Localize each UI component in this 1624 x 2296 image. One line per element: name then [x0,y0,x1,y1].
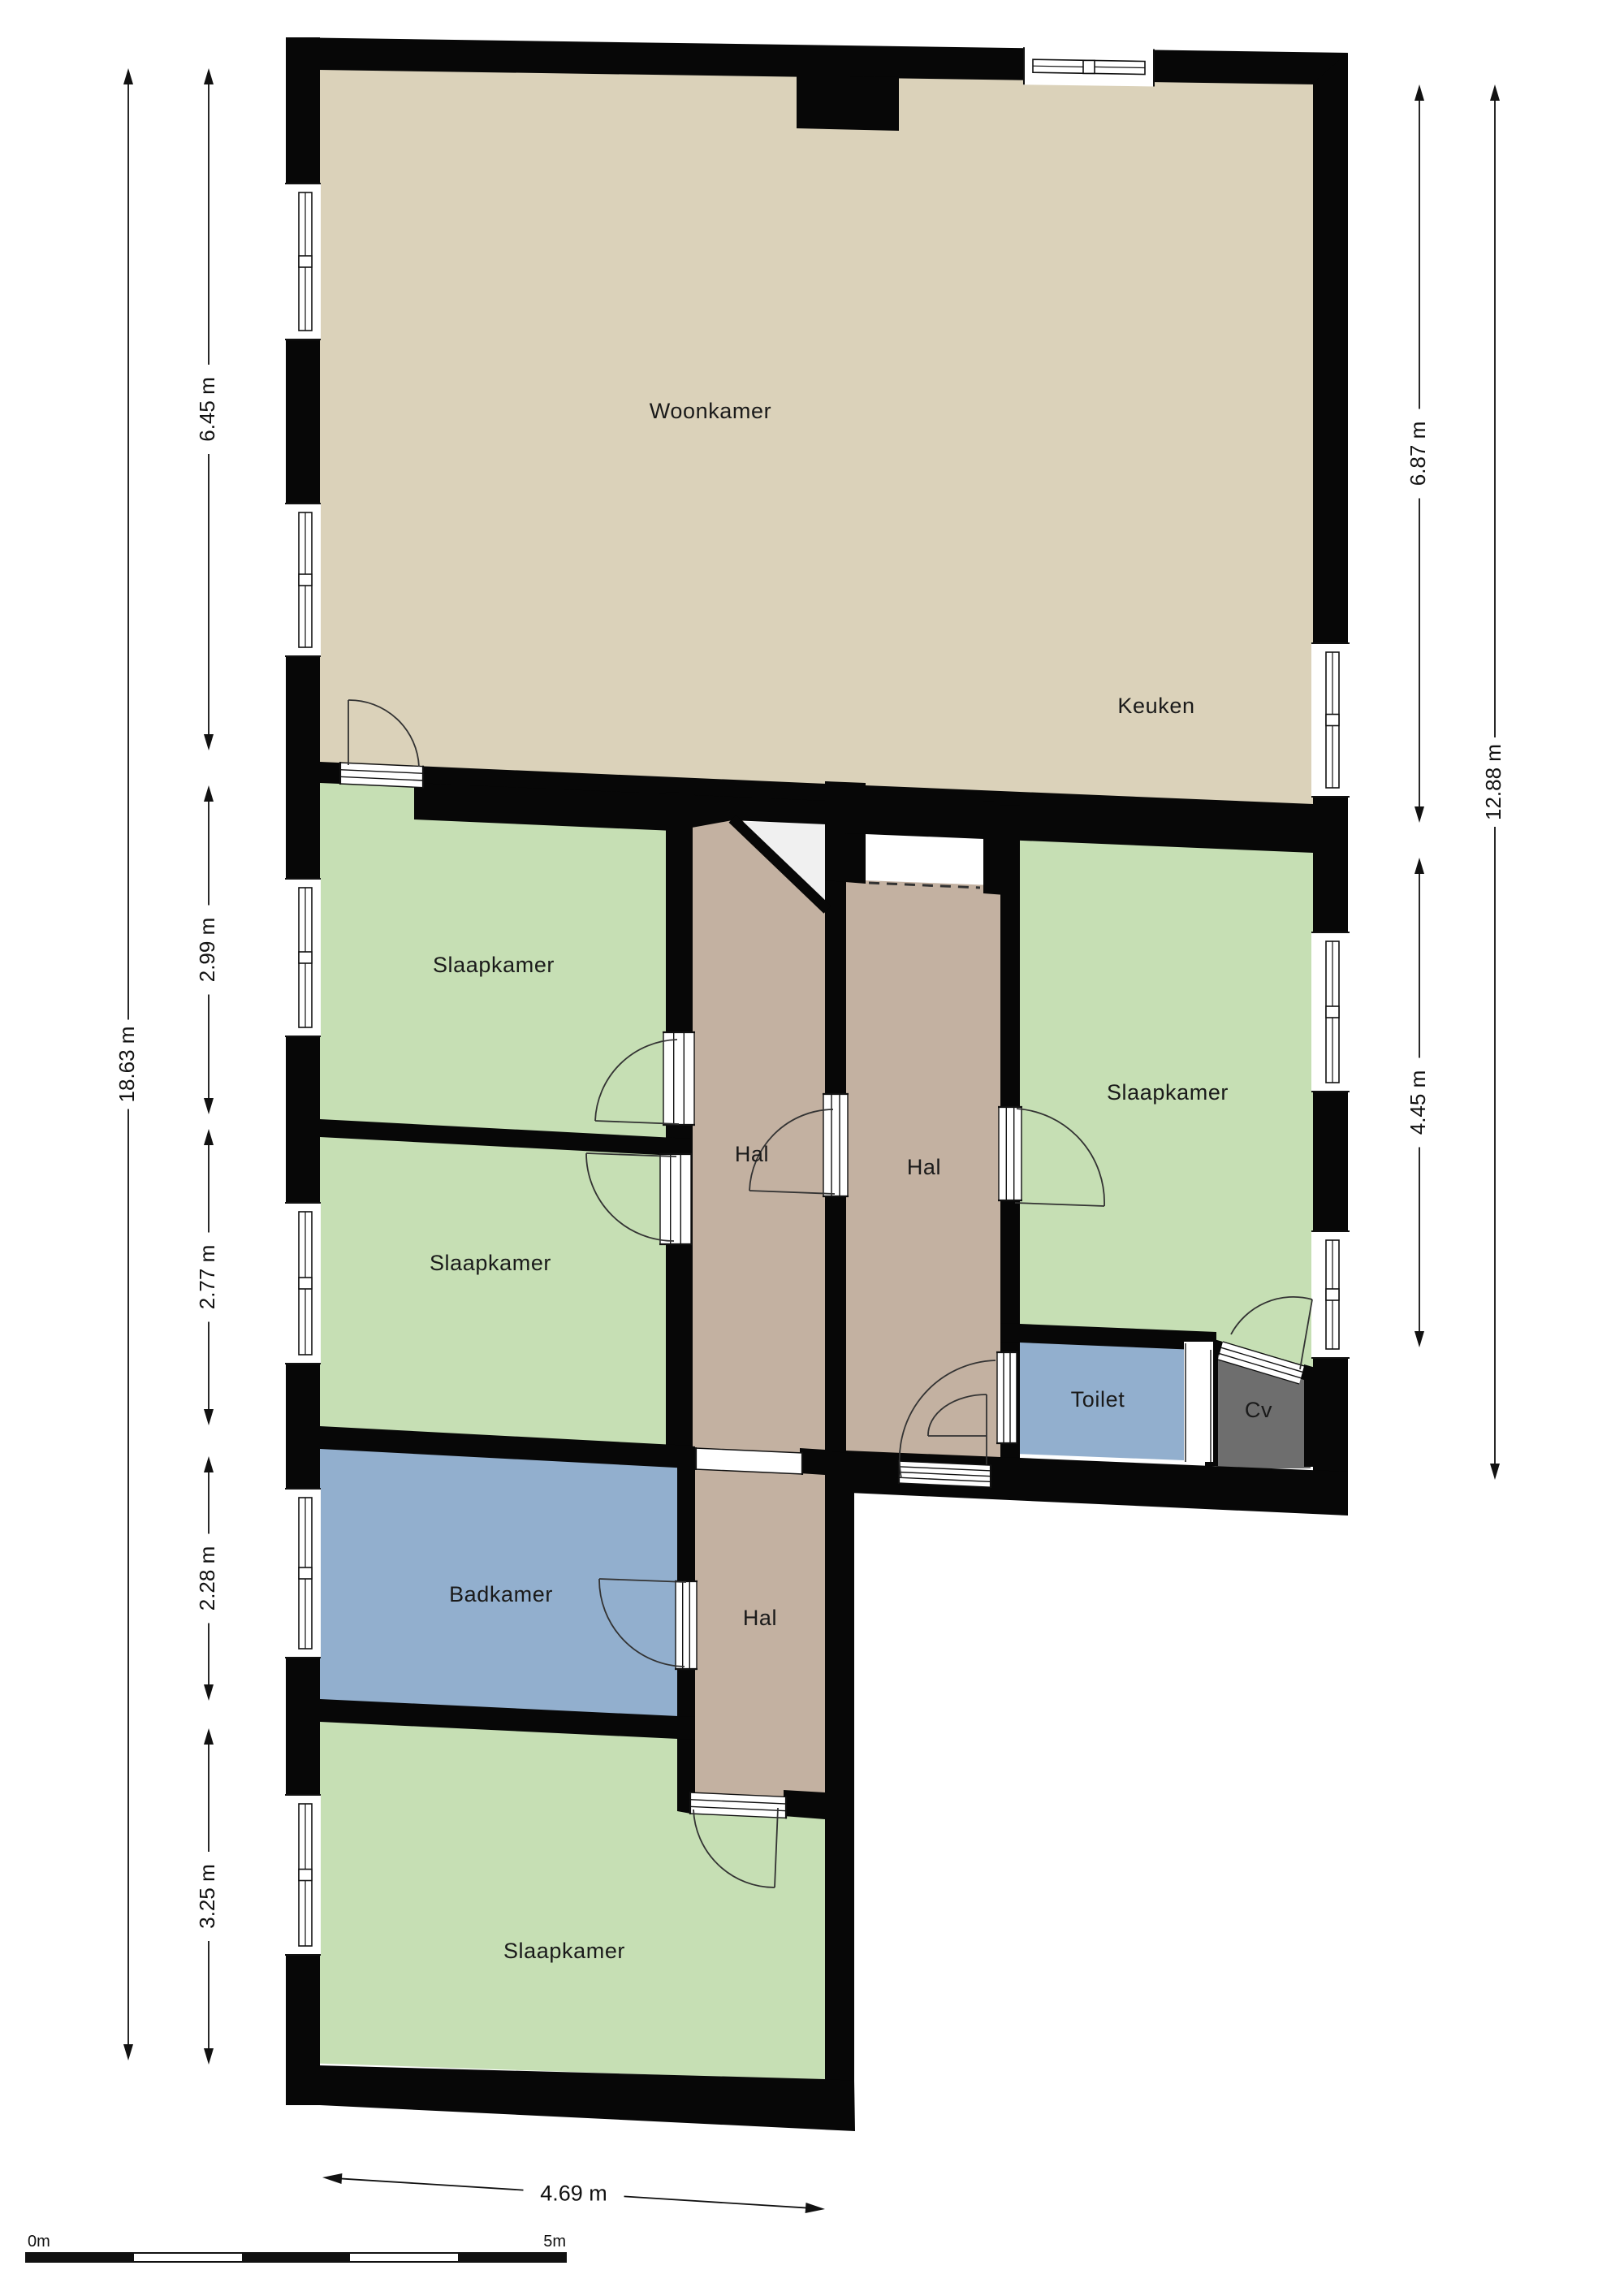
svg-text:Hal: Hal [743,1606,777,1630]
svg-text:18.63 m: 18.63 m [114,1027,139,1103]
svg-text:Toilet: Toilet [1071,1387,1125,1412]
svg-text:6.87 m: 6.87 m [1406,422,1430,486]
svg-text:Woonkamer: Woonkamer [650,399,771,423]
svg-text:Slaapkamer: Slaapkamer [430,1251,551,1275]
svg-text:Hal: Hal [735,1142,769,1166]
svg-text:0m: 0m [28,2233,50,2251]
svg-text:Cv: Cv [1245,1398,1272,1422]
svg-text:Slaapkamer: Slaapkamer [1107,1080,1229,1105]
svg-text:2.99 m: 2.99 m [195,918,219,983]
svg-text:6.45 m: 6.45 m [195,377,219,442]
svg-text:Slaapkamer: Slaapkamer [433,953,555,977]
svg-text:4.69 m: 4.69 m [540,2181,607,2206]
svg-text:5m: 5m [543,2233,566,2251]
svg-text:Hal: Hal [907,1155,941,1179]
svg-text:Slaapkamer: Slaapkamer [503,1939,625,1963]
svg-text:2.77 m: 2.77 m [195,1245,219,1310]
svg-text:Badkamer: Badkamer [449,1582,553,1606]
svg-text:4.45 m: 4.45 m [1406,1070,1430,1135]
svg-text:12.88 m: 12.88 m [1481,744,1505,820]
svg-text:3.25 m: 3.25 m [195,1864,219,1929]
svg-text:2.28 m: 2.28 m [195,1546,219,1611]
svg-text:Keuken: Keuken [1117,694,1194,718]
